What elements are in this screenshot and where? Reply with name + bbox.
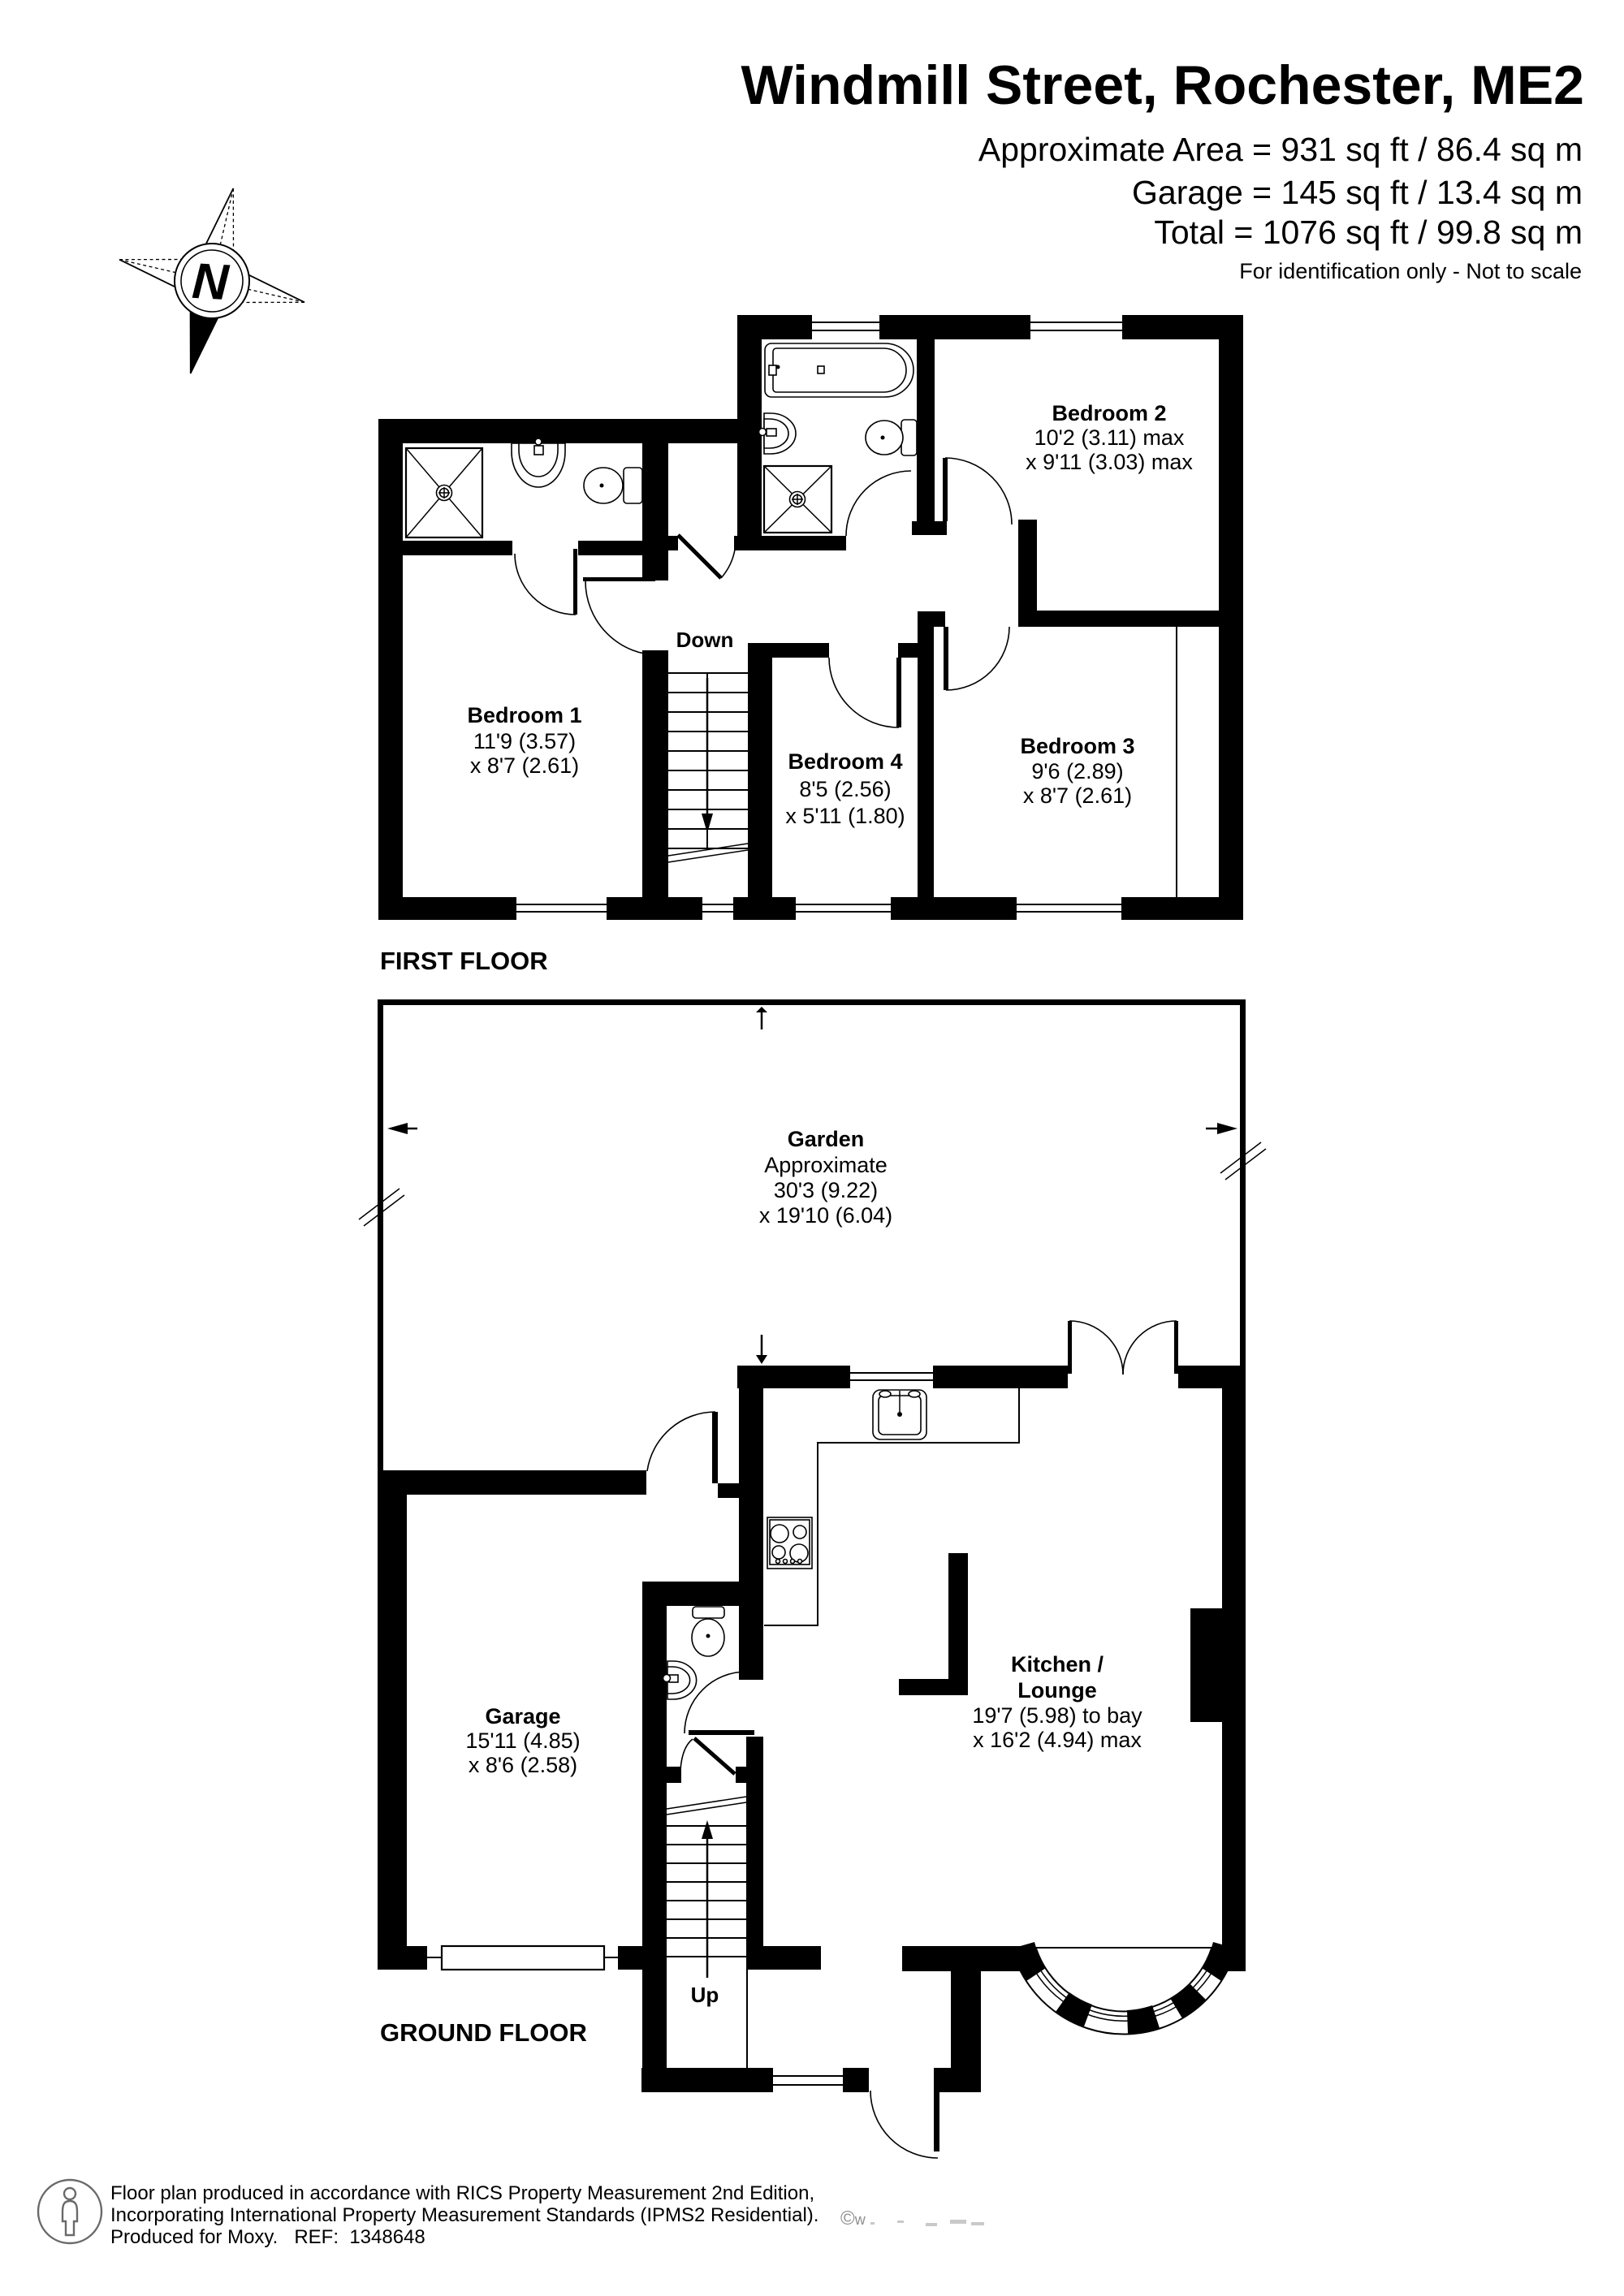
svg-text:8'5 (2.56): 8'5 (2.56) — [799, 777, 891, 801]
svg-text:GROUND FLOOR: GROUND FLOOR — [380, 2018, 587, 2047]
svg-text:11'9 (3.57): 11'9 (3.57) — [473, 729, 576, 753]
svg-text:Lounge: Lounge — [1017, 1678, 1096, 1703]
svg-text:10'2 (3.11) max: 10'2 (3.11) max — [1034, 425, 1185, 450]
svg-text:©w: ©w — [840, 2208, 866, 2229]
svg-text:Down: Down — [676, 628, 734, 652]
svg-text:Approximate Area = 931 sq ft /: Approximate Area = 931 sq ft / 86.4 sq m — [978, 131, 1583, 168]
svg-text:9'6 (2.89): 9'6 (2.89) — [1031, 759, 1123, 783]
svg-text:Bedroom 1: Bedroom 1 — [467, 703, 581, 727]
svg-text:19'7 (5.98) to bay: 19'7 (5.98) to bay — [972, 1703, 1142, 1728]
svg-text:x 8'6 (2.58): x 8'6 (2.58) — [469, 1753, 577, 1777]
svg-text:Produced for Moxy. REF: 134: Produced for Moxy. REF: 1348648 — [110, 2226, 425, 2248]
svg-text:Floor plan produced in accorda: Floor plan produced in accordance with R… — [110, 2182, 814, 2204]
svg-text:x 8'7 (2.61): x 8'7 (2.61) — [470, 753, 579, 778]
svg-text:x 8'7 (2.61): x 8'7 (2.61) — [1023, 783, 1132, 808]
svg-text:FIRST FLOOR: FIRST FLOOR — [380, 947, 548, 975]
svg-text:Bedroom 2: Bedroom 2 — [1052, 401, 1166, 425]
svg-text:Garage = 145 sq ft / 13.4 sq m: Garage = 145 sq ft / 13.4 sq m — [1132, 174, 1583, 211]
svg-text:Windmill Street, Rochester, ME: Windmill Street, Rochester, ME2 — [741, 54, 1584, 116]
svg-text:Kitchen /: Kitchen / — [1011, 1652, 1104, 1677]
svg-text:x 19'10 (6.04): x 19'10 (6.04) — [759, 1203, 892, 1228]
svg-text:Incorporating International Pr: Incorporating International Property Mea… — [110, 2204, 818, 2226]
svg-text:x 9'11 (3.03) max: x 9'11 (3.03) max — [1026, 450, 1193, 474]
svg-text:Bedroom 3: Bedroom 3 — [1020, 734, 1134, 758]
svg-text:Garage: Garage — [485, 1704, 560, 1728]
svg-text:Garden: Garden — [788, 1127, 865, 1151]
svg-text:Approximate: Approximate — [764, 1153, 888, 1177]
svg-text:15'11 (4.85): 15'11 (4.85) — [465, 1728, 580, 1753]
svg-text:30'3 (9.22): 30'3 (9.22) — [774, 1178, 878, 1202]
svg-text:Bedroom 4: Bedroom 4 — [788, 749, 902, 774]
svg-text:For identification only - Not: For identification only - Not to scale — [1239, 259, 1582, 283]
svg-text:x 16'2 (4.94) max: x 16'2 (4.94) max — [973, 1728, 1142, 1752]
svg-text:x 5'11 (1.80): x 5'11 (1.80) — [785, 804, 905, 828]
svg-text:N: N — [191, 253, 231, 311]
svg-text:Total = 1076 sq ft / 99.8 sq m: Total = 1076 sq ft / 99.8 sq m — [1154, 214, 1583, 251]
svg-text:Up: Up — [691, 1983, 719, 2007]
